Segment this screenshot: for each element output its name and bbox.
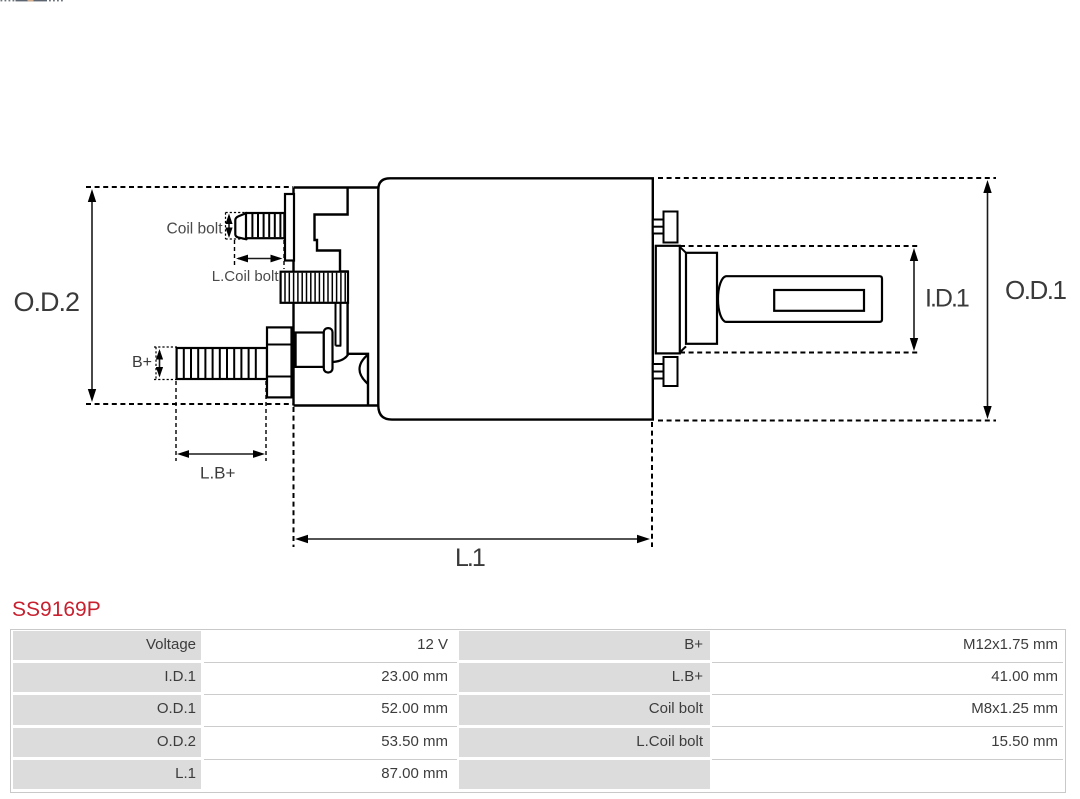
svg-text:L.1: L.1 [455, 544, 485, 572]
svg-text:O.D.1: O.D.1 [1005, 275, 1066, 305]
svg-text:L.Coil bolt: L.Coil bolt [212, 268, 280, 285]
svg-text:O.D.2: O.D.2 [13, 287, 79, 317]
svg-text:Coil bolt: Coil bolt [167, 221, 224, 238]
svg-text:I.D.1: I.D.1 [925, 285, 969, 313]
svg-text:L.B+: L.B+ [200, 464, 236, 483]
svg-text:B+: B+ [132, 354, 152, 371]
